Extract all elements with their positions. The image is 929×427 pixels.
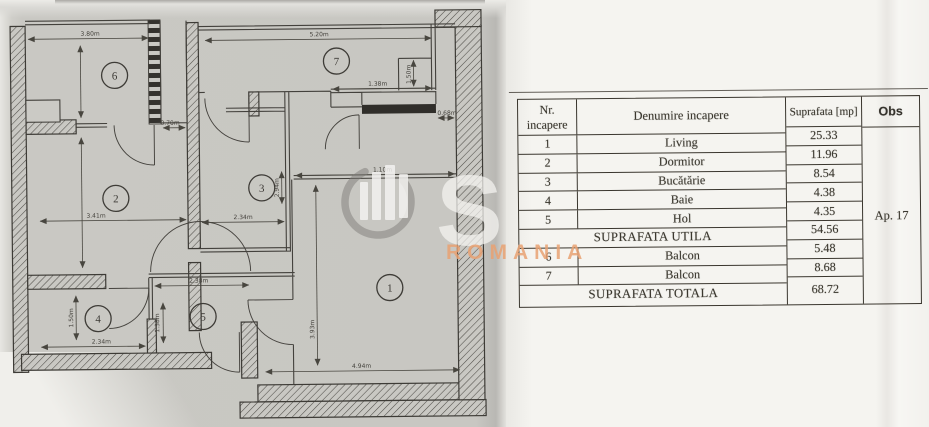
floor-plan-drawing: 3.80m0.70m5.20m1.50m1.38m0.68m1.10m3.41m… — [0, 0, 506, 427]
room-number: 5 — [200, 311, 206, 323]
balcony-sill — [362, 104, 436, 114]
shaft-outline — [160, 21, 187, 123]
room-name-cell: Hol — [578, 209, 786, 229]
area-value-cell: 5.48 — [787, 239, 862, 259]
dimension-label: 2.34m — [233, 214, 252, 221]
dimension-label: 1.50m — [68, 308, 75, 327]
scan-rule-line — [509, 88, 928, 93]
table-row: 2Dormitor — [519, 152, 786, 173]
dimension-label: 0.68m — [437, 110, 456, 117]
area-value-cell: 8.68 — [788, 258, 863, 278]
obs-column: Obs Ap. 17 — [862, 96, 921, 304]
room-nr-cell: 7 — [520, 267, 579, 285]
room-nr-cell: 4 — [519, 192, 578, 210]
area-table: Nr. incapere Denumire incapere 1Living2D… — [507, 82, 929, 328]
room-name-cell: Balcon — [578, 246, 786, 266]
dimension-label: 5.20m — [310, 31, 329, 38]
dimension-label: 2.34m — [92, 338, 111, 345]
dimension-label: 1.10m — [373, 167, 392, 174]
table-row: SUPRAFATA UTILA — [519, 227, 786, 248]
dimension-label: 2.38m — [189, 277, 208, 284]
door-arcs — [107, 97, 362, 374]
dimension-label: 1.38m — [154, 313, 161, 332]
dimension-label: 4.94m — [352, 363, 371, 370]
shaft-pillar — [148, 20, 161, 124]
room-number-circles: 6723451 — [82, 47, 403, 331]
header-denumire: Denumire incapere — [577, 97, 785, 134]
dimension-label: 1.50m — [405, 65, 412, 84]
dimension-label: 1.38m — [368, 81, 387, 88]
room-number: 6 — [112, 70, 118, 82]
header-nr-line2: incapere — [527, 117, 568, 132]
area-value-cell: 25.33 — [786, 127, 861, 147]
area-value-cell: 8.54 — [787, 164, 862, 184]
area-value-cell: 68.72 — [788, 277, 863, 303]
header-obs: Obs — [862, 96, 919, 128]
area-value-cell: 4.38 — [787, 183, 862, 203]
dimension-label: 0.70m — [160, 120, 179, 127]
room-number: 1 — [387, 283, 393, 295]
merged-total-label: SUPRAFATA UTILA — [519, 227, 786, 247]
room-nr-cell: 6 — [519, 248, 578, 266]
suprafata-values: 25.3311.968.544.384.3554.565.488.6868.72 — [786, 127, 863, 303]
room-number: 7 — [334, 56, 340, 68]
room-number: 2 — [113, 193, 119, 205]
table-header-row: Nr. incapere Denumire incapere — [518, 97, 785, 136]
table-row: 5Hol — [519, 209, 786, 230]
suprafata-column: Suprafata [mp] 25.3311.968.544.384.3554.… — [785, 97, 864, 305]
room-number: 4 — [95, 314, 101, 326]
merged-total-label: SUPRAFATA TOTALA — [520, 284, 787, 305]
dimension-label: 3.93m — [309, 320, 316, 339]
area-value-cell: 4.35 — [787, 202, 862, 222]
table-rows: 1Living2Dormitor3Bucătărie4Baie5HolSUPRA… — [518, 133, 787, 305]
header-suprafata: Suprafata [mp] — [786, 97, 861, 128]
dimension-label: 3.80m — [81, 31, 100, 38]
room-nr-cell: 3 — [519, 173, 578, 191]
room-number: 3 — [259, 183, 265, 195]
dimension-labels: 3.80m0.70m5.20m1.50m1.38m0.68m1.10m3.41m… — [65, 27, 459, 373]
room-name-cell: Baie — [578, 190, 786, 210]
table-row: 6Balcon — [519, 246, 786, 267]
room-nr-cell: 1 — [518, 135, 577, 153]
header-nr-incapere: Nr. incapere — [518, 99, 577, 135]
room-name-cell: Bucătărie — [578, 171, 786, 191]
table-row: 7Balcon — [520, 265, 787, 286]
table-row: SUPRAFATA TOTALA — [520, 284, 787, 305]
room-name-cell: Dormitor — [578, 152, 786, 172]
table-row: 3Bucătărie — [519, 171, 786, 192]
room-nr-cell: 2 — [519, 154, 578, 172]
table-frame: Nr. incapere Denumire incapere 1Living2D… — [517, 95, 922, 308]
table-row: 1Living — [518, 133, 785, 154]
wall-pier — [26, 100, 60, 122]
dimension-label: 3.41m — [86, 213, 105, 220]
room-nr-cell: 5 — [519, 211, 578, 229]
room-name-cell: Living — [577, 133, 785, 153]
obs-value: Ap. 17 — [862, 127, 921, 304]
header-nr-line1: Nr. — [540, 103, 555, 117]
area-value-cell: 54.56 — [787, 221, 862, 241]
table-row: 4Baie — [519, 190, 786, 211]
area-value-cell: 11.96 — [786, 145, 861, 165]
scanned-apartment-document: 3.80m0.70m5.20m1.50m1.38m0.68m1.10m3.41m… — [0, 0, 929, 427]
room-name-cell: Balcon — [579, 265, 787, 285]
